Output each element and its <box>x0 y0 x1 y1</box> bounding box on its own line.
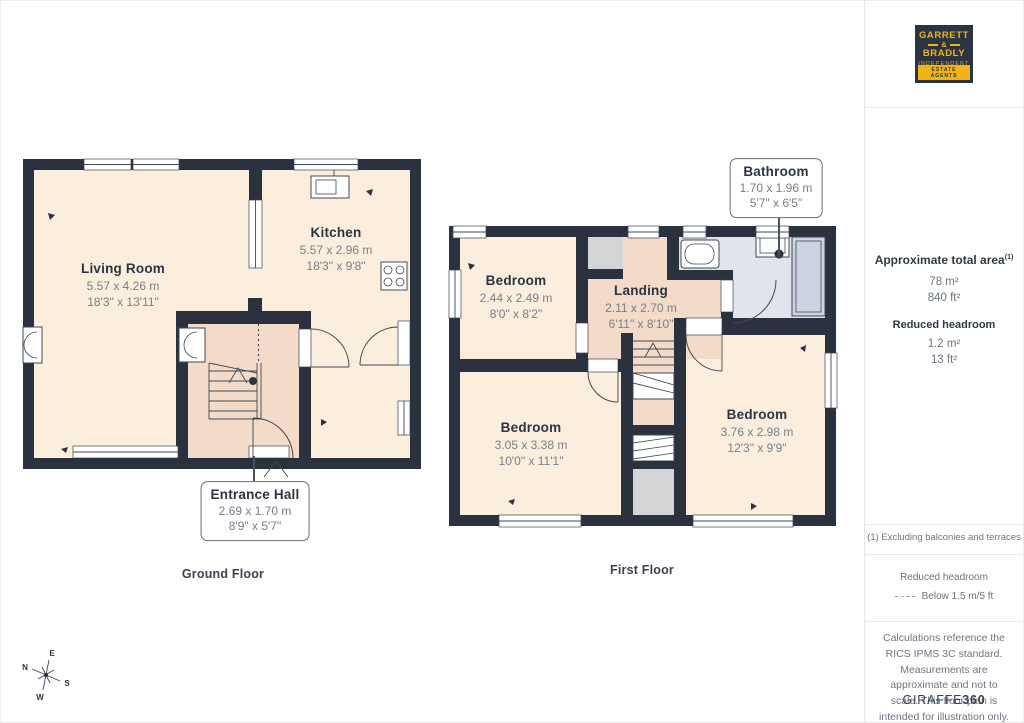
area-summary: Approximate total area(1) 78 m² 840 ft² … <box>865 253 1023 366</box>
divider <box>865 554 1023 555</box>
info-sidebar: GARRETT & BRADLY INDEPENDENT ESTATE AGEN… <box>864 1 1023 723</box>
area-footnote: (1) Excluding balconies and terraces <box>865 532 1023 543</box>
first-floor-label: First Floor <box>610 563 674 577</box>
niche-hall-wall <box>179 328 205 362</box>
compass-s: S <box>64 679 70 688</box>
room-label-bedroom2: Bedroom 3.05 x 3.38 m 10'0" x 11'1" <box>495 419 568 469</box>
reduced-headroom-title: Reduced headroom <box>865 319 1023 331</box>
disclaimer-text: Calculations reference the RICS IPMS 3C … <box>865 631 1023 723</box>
newel-post <box>249 377 257 385</box>
giraffe360-brand: GIRAFFE360 <box>865 693 1023 707</box>
landing-floor <box>623 237 667 285</box>
total-area-title: Approximate total area(1) <box>865 253 1023 267</box>
legend: Reduced headroom Below 1.5 m/5 ft <box>865 572 1023 602</box>
ground-floor-label: Ground Floor <box>182 567 264 581</box>
floorplan-page: Living Room 5.57 x 4.26 m 18'3" x 13'11"… <box>0 0 1024 723</box>
reduced-headroom-metric: 1.2 m² <box>865 338 1023 350</box>
hob-icon <box>381 262 407 290</box>
niche-left-wall <box>23 327 42 363</box>
compass-n: N <box>22 663 28 672</box>
bathroom-leader <box>778 217 780 257</box>
divider <box>865 621 1023 622</box>
divider <box>865 107 1023 108</box>
compass-w: W <box>36 693 44 702</box>
entrance-hall-callout: Entrance Hall 2.69 x 1.70 m 8'9" x 5'7" <box>201 481 310 541</box>
room-label-bedroom3: Bedroom 3.76 x 2.98 m 12'3" x 9'9" <box>721 406 794 456</box>
compass-e: E <box>49 649 55 658</box>
total-area-metric: 78 m² <box>865 276 1023 288</box>
room-label-living: Living Room 5.57 x 4.26 m 18'3" x 13'11" <box>81 260 165 310</box>
dashed-line-sample <box>895 596 915 597</box>
room-label-kitchen: Kitchen 5.57 x 2.96 m 18'3" x 9'8" <box>300 224 373 274</box>
ground-floor-plan <box>21 151 423 481</box>
entrance-hall-leader <box>253 456 255 481</box>
agency-logo: GARRETT & BRADLY INDEPENDENT ESTATE AGEN… <box>915 25 973 83</box>
room-label-landing: Landing 2.11 x 2.70 m 6'11" x 8'10" <box>605 282 677 332</box>
bathtub-icon <box>681 240 719 268</box>
basin-icon <box>756 235 789 259</box>
divider <box>865 524 1023 525</box>
reduced-headroom-imperial: 13 ft² <box>865 354 1023 366</box>
shower-icon <box>792 237 825 316</box>
compass-icon: N E S W <box>9 637 95 717</box>
room-label-bedroom1: Bedroom 2.44 x 2.49 m 8'0" x 8'2" <box>480 272 553 322</box>
closet-bottom <box>633 469 674 515</box>
cupboard-hatch <box>633 435 674 461</box>
closet-top <box>588 237 623 269</box>
stairs-ground <box>209 363 261 419</box>
first-floor-plan <box>446 223 838 529</box>
total-area-imperial: 840 ft² <box>865 292 1023 304</box>
bathroom-callout: Bathroom 1.70 x 1.96 m 5'7" x 6'5" <box>730 158 823 218</box>
